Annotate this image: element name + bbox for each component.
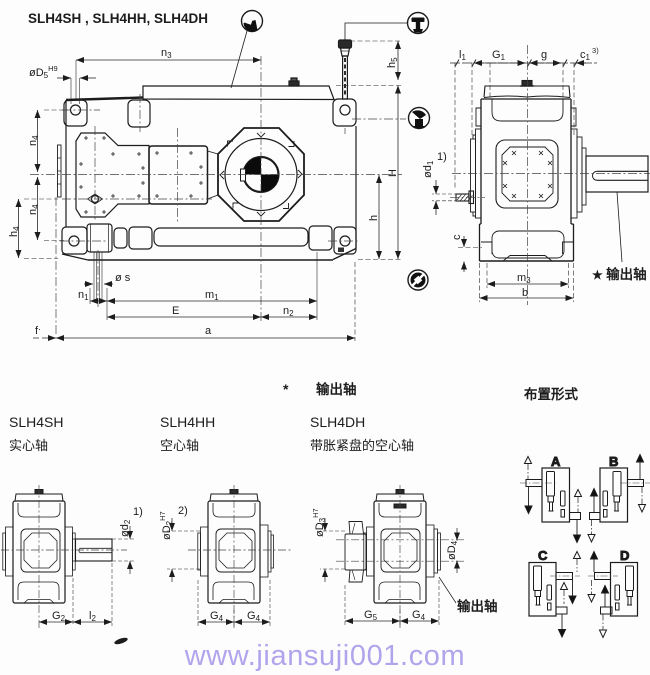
svg-text:布置形式: 布置形式	[524, 386, 578, 402]
svg-text:ød1: ød1	[422, 160, 435, 178]
svg-text:*: *	[283, 381, 289, 397]
svg-text:输出轴: 输出轴	[316, 381, 357, 397]
svg-text:H: H	[387, 169, 399, 177]
svg-text:h5: h5	[386, 57, 399, 68]
svg-text:n1: n1	[78, 289, 89, 302]
svg-text:1): 1)	[133, 506, 143, 518]
svg-text:SLH4DH: SLH4DH	[310, 414, 365, 430]
svg-text:D: D	[620, 548, 629, 563]
svg-text:输出轴: 输出轴	[457, 598, 498, 614]
svg-text:G5: G5	[364, 609, 378, 622]
svg-text:h4: h4	[8, 226, 21, 237]
svg-text:实心轴: 实心轴	[9, 438, 48, 453]
svg-text:B: B	[609, 454, 618, 469]
svg-text:øD3H7: øD3H7	[311, 508, 327, 537]
svg-text:l2: l2	[89, 610, 96, 623]
svg-text:1): 1)	[437, 151, 447, 163]
svg-text:n4: n4	[27, 135, 40, 146]
svg-text:SLH4HH: SLH4HH	[160, 414, 215, 430]
svg-text:G1: G1	[492, 49, 506, 62]
svg-text:空心轴: 空心轴	[160, 438, 199, 453]
svg-text:ø s: ø s	[115, 272, 131, 284]
svg-text:a: a	[205, 325, 212, 337]
svg-text:SLH4SH , SLH4HH, SLH4DH: SLH4SH , SLH4HH, SLH4DH	[28, 11, 208, 26]
svg-text:g: g	[541, 49, 547, 61]
svg-text:n3: n3	[161, 47, 172, 60]
svg-text:b: b	[522, 287, 528, 299]
svg-text:www.jiansuji001.com: www.jiansuji001.com	[184, 640, 466, 672]
svg-text:ød2: ød2	[119, 519, 132, 537]
svg-text:øD4: øD4	[446, 540, 459, 560]
svg-text:G2: G2	[52, 610, 66, 623]
svg-text:G4: G4	[412, 609, 426, 622]
svg-text:c1 3): c1 3)	[580, 46, 599, 62]
svg-text:C: C	[538, 548, 548, 563]
svg-text:G4: G4	[247, 610, 261, 623]
svg-text:SLH4SH: SLH4SH	[9, 414, 63, 430]
svg-text:G4: G4	[210, 610, 224, 623]
svg-text:l1: l1	[459, 49, 466, 62]
svg-text:c: c	[451, 234, 463, 240]
svg-text:øD2H7: øD2H7	[158, 511, 174, 540]
svg-text:m1: m1	[205, 289, 219, 302]
svg-text:n2: n2	[283, 305, 294, 318]
svg-text:带胀紧盘的空心轴: 带胀紧盘的空心轴	[310, 438, 414, 453]
svg-text:★ 输出轴: ★ 输出轴	[592, 266, 647, 282]
svg-text:E: E	[172, 305, 179, 317]
svg-text:h: h	[368, 215, 380, 221]
svg-text:2): 2)	[178, 505, 188, 517]
svg-text:n4: n4	[27, 204, 40, 215]
svg-text:m3: m3	[517, 272, 531, 285]
svg-text:øD5H9: øD5H9	[29, 64, 58, 80]
svg-text:A: A	[551, 454, 561, 469]
svg-text:f·: f·	[35, 324, 41, 337]
